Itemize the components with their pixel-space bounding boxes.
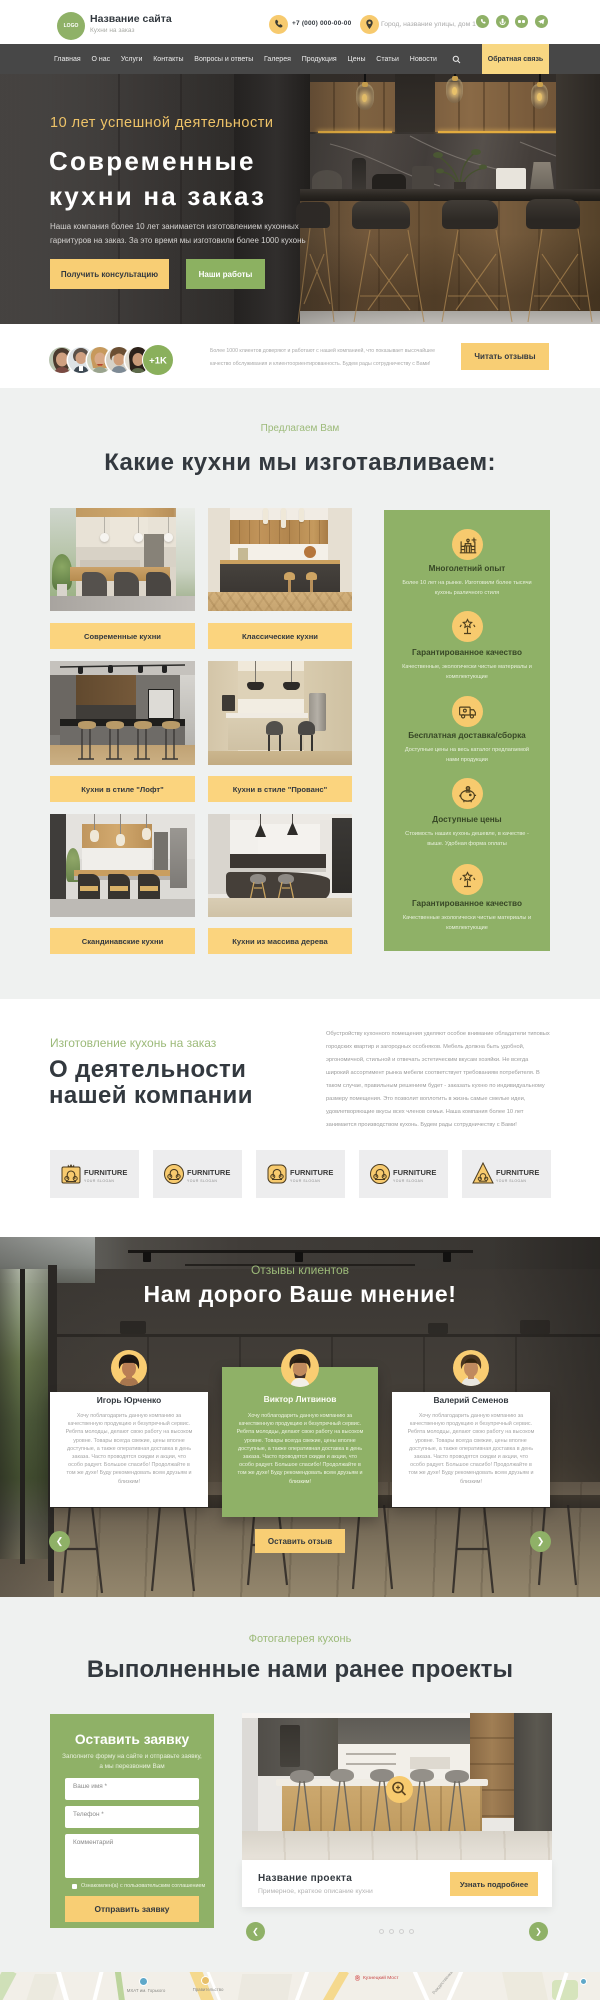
svg-text:YOUR SLOGAN: YOUR SLOGAN bbox=[84, 1179, 114, 1183]
svg-text:FURNITURE: FURNITURE bbox=[290, 1168, 333, 1177]
svg-text:YOUR SLOGAN: YOUR SLOGAN bbox=[496, 1179, 526, 1183]
svg-text:YOUR SLOGAN: YOUR SLOGAN bbox=[290, 1179, 320, 1183]
svg-text:FURNITURE: FURNITURE bbox=[187, 1168, 230, 1177]
svg-text:FURNITURE: FURNITURE bbox=[393, 1168, 436, 1177]
svg-text:+1K: +1K bbox=[149, 356, 167, 367]
svg-text:YOUR SLOGAN: YOUR SLOGAN bbox=[187, 1179, 217, 1183]
svg-text:FURNITURE: FURNITURE bbox=[84, 1168, 127, 1177]
svg-text:YOUR SLOGAN: YOUR SLOGAN bbox=[393, 1179, 423, 1183]
svg-text:FURNITURE: FURNITURE bbox=[496, 1168, 539, 1177]
